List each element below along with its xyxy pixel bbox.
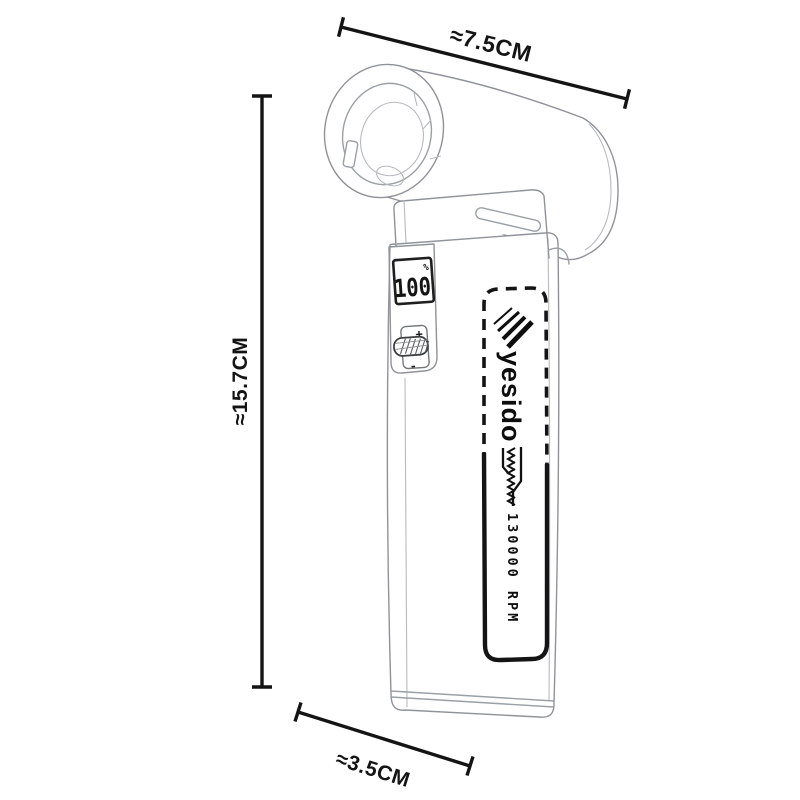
fan-handle-body (387, 233, 558, 717)
display-value: 100 (393, 273, 432, 304)
width-dimension-label: ≈7.5CM (447, 21, 534, 67)
dimension-height: ≈15.7CM (229, 96, 272, 687)
dimension-depth: ≈3.5CM (295, 702, 473, 792)
product-dimension-diagram: ≈7.5CM ≈15.7CM ≈3.5CM (0, 0, 800, 800)
width-tick-right (625, 89, 630, 108)
rpm-speed-text: 130000 RPM (504, 513, 520, 624)
fan-illustration: 100 % + - yesido (311, 52, 618, 717)
display-screen: 100 % (392, 258, 434, 305)
height-dimension-label: ≈15.7CM (229, 337, 252, 426)
width-tick-left (339, 17, 344, 36)
scroll-wheel-icon (393, 336, 429, 356)
depth-dimension-label: ≈3.5CM (333, 747, 413, 792)
depth-dimension-line (298, 712, 470, 766)
brand-logo-text: yesido (496, 351, 526, 443)
